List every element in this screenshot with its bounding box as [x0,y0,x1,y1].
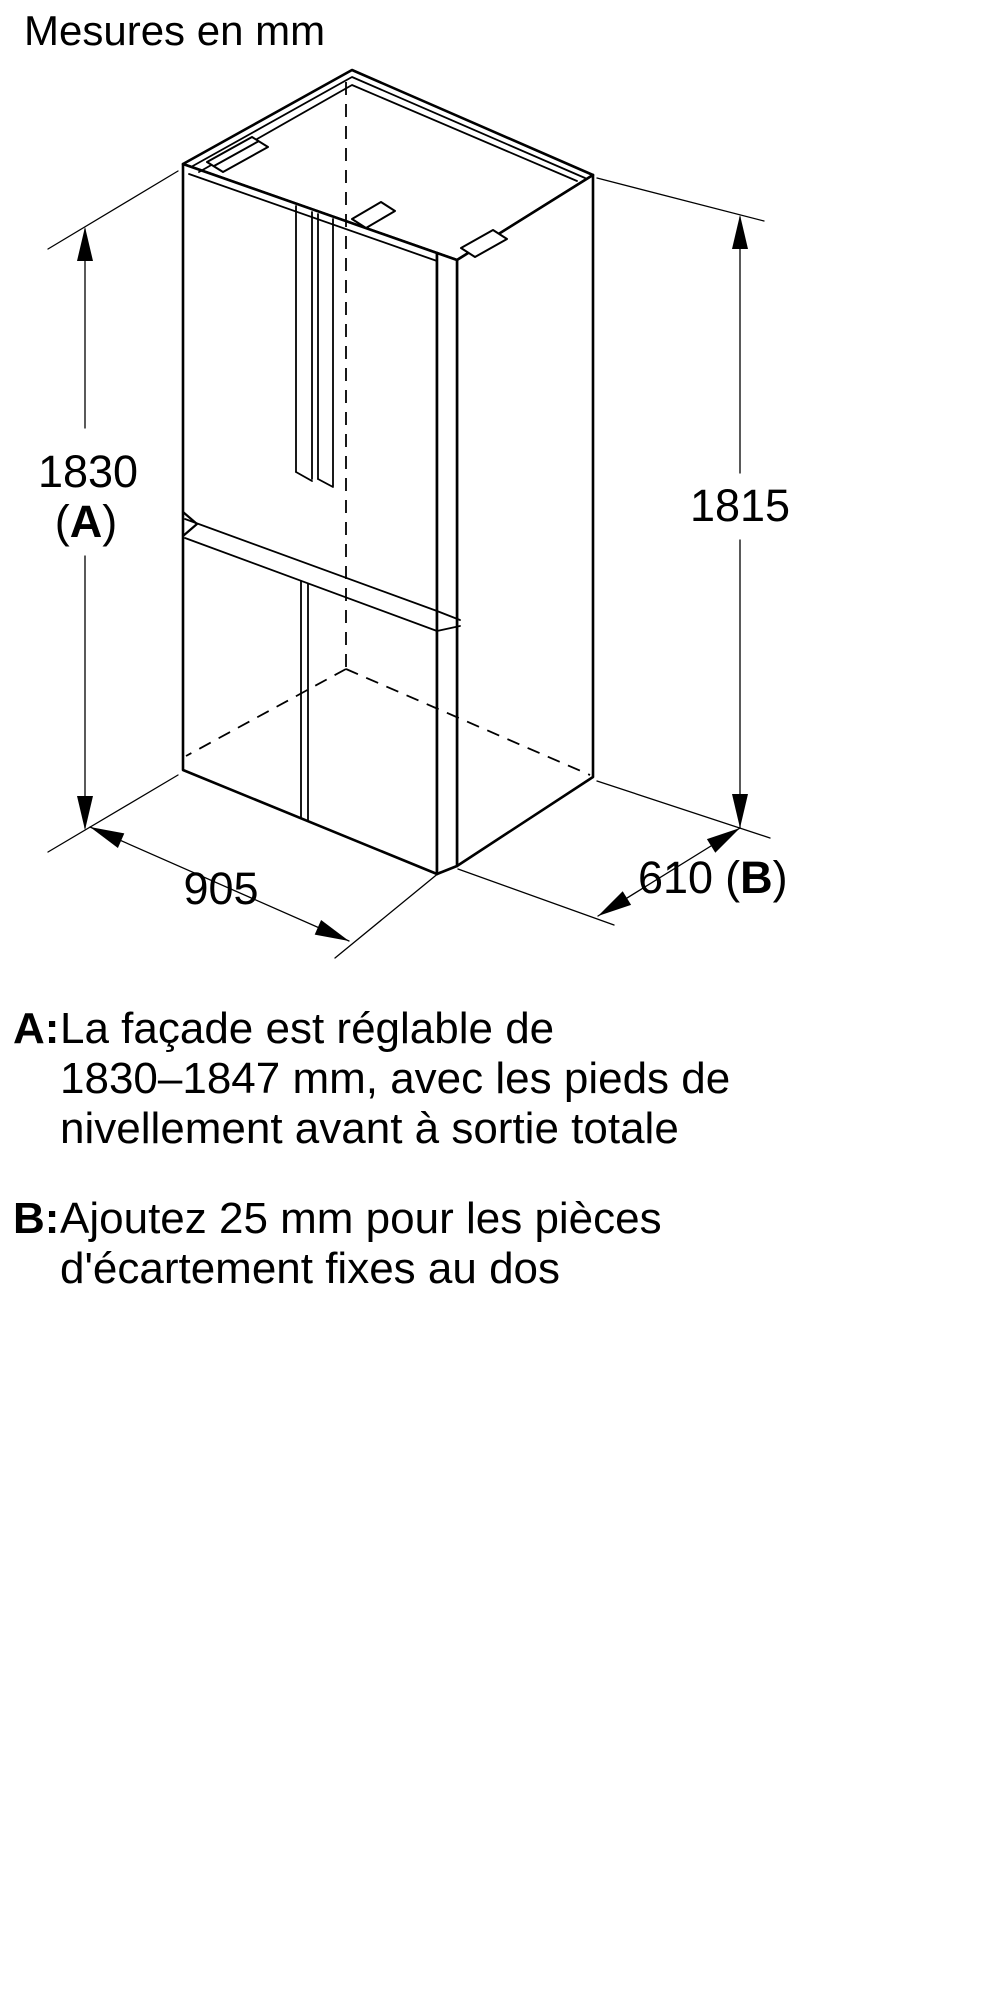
dimension-diagram-page: Mesures en mm [0,0,1000,2000]
fridge-front-face [183,164,437,874]
note-a-line-3: nivellement avant à sortie totale [60,1104,853,1154]
arrow-back-height-up [732,215,748,249]
fridge-side-face [457,175,593,866]
arrow-depth-down [598,891,631,916]
note-a: A: La façade est réglable de 1830–1847 m… [13,1004,853,1154]
note-a-key: A: [13,1004,60,1054]
arrow-depth-up [707,828,740,853]
note-a-text: La façade est réglable de 1830–1847 mm, … [60,1004,853,1154]
note-b: B: Ajoutez 25 mm pour les pièces d'écart… [13,1194,853,1294]
ext-line-back-height-top [597,178,764,221]
arrow-front-height-up [77,227,93,261]
note-b-line-1: Ajoutez 25 mm pour les pièces [60,1194,853,1244]
note-a-line-2: 1830–1847 mm, avec les pieds de [60,1054,853,1104]
ext-line-front-height-top [48,171,178,249]
fridge-door-edge-strip [437,253,457,874]
note-a-line-1: La façade est réglable de [60,1004,853,1054]
arrow-width-left [90,827,124,848]
arrow-width-right [315,920,349,941]
arrow-back-height-down [732,794,748,828]
note-b-line-2: d'écartement fixes au dos [60,1244,853,1294]
dim-front-height-letter: (A) [55,496,118,547]
dim-depth-value: 610(B) [638,852,788,903]
arrow-front-height-down [77,796,93,830]
dim-back-height-value: 1815 [690,480,790,531]
ext-line-width-right [335,872,440,958]
fridge-dimension-drawing: 1830 (A) 1815 905 610(B) [0,0,1000,975]
fridge-cabinet [183,70,593,874]
note-b-text: Ajoutez 25 mm pour les pièces d'écarteme… [60,1194,853,1294]
dim-front-height-value: 1830 [38,446,138,497]
dim-width-value: 905 [183,863,258,914]
ext-line-depth-left [458,869,614,925]
note-b-key: B: [13,1194,60,1244]
